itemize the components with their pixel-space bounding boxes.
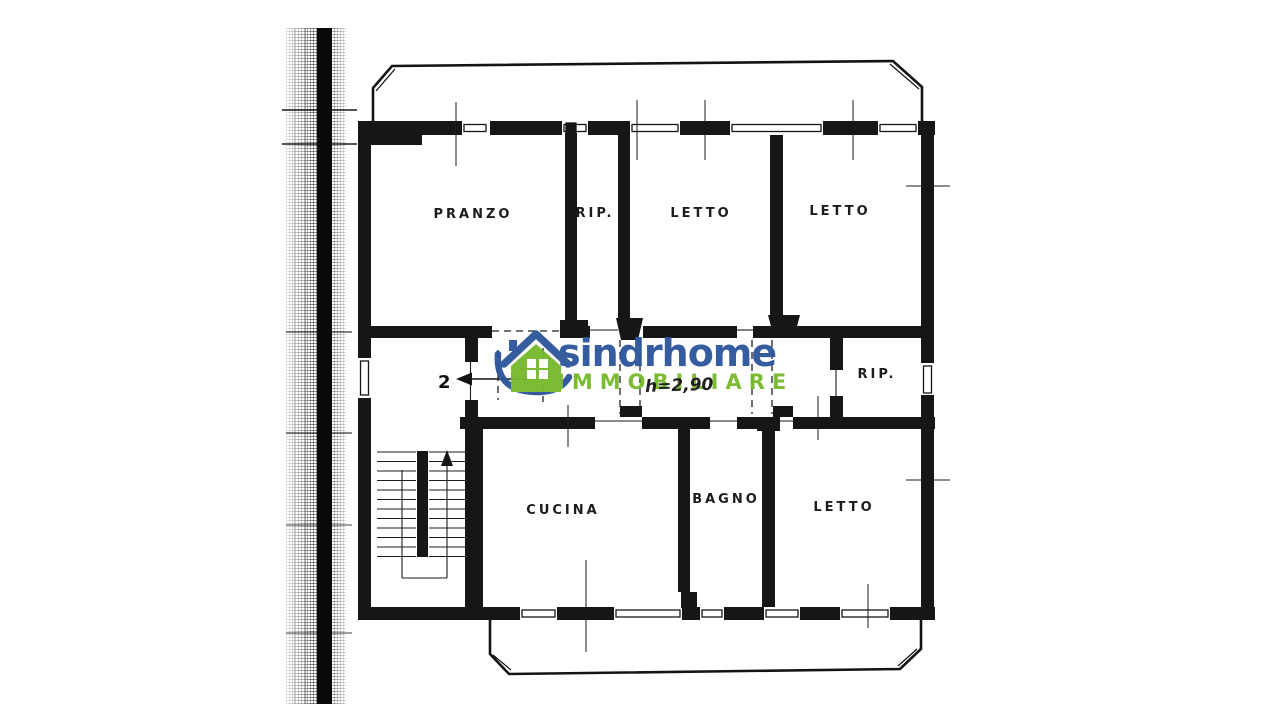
room-label-letto-top-right: LETTO: [809, 204, 870, 219]
ceiling-height-note: h=2,90: [645, 375, 714, 397]
room-label-letto-bottom: LETTO: [813, 500, 874, 515]
balcony-bottom: [490, 620, 921, 674]
watermark-logo: sindrhome IMMOBILIARE h=2,90: [498, 331, 793, 397]
unit-number-label: 2: [438, 372, 451, 393]
room-label-rip-top: RIP.: [576, 206, 615, 221]
scan-artifact-core: [317, 28, 332, 704]
watermark-brand-text: sindrhome: [558, 331, 776, 375]
room-label-pranzo: PRANZO: [434, 207, 513, 222]
room-label-cucina: CUCINA: [526, 503, 599, 518]
floor-plan-drawing: 2 PRANZO RIP. LETTO LETTO RIP. CUCINA BA…: [0, 0, 1280, 720]
room-label-bagno: BAGNO: [692, 492, 760, 507]
entry-arrow-icon: [456, 373, 472, 386]
stairs: [377, 450, 468, 578]
balcony-top: [373, 61, 922, 121]
room-label-letto-top-left: LETTO: [670, 206, 731, 221]
room-label-rip-right: RIP.: [858, 367, 897, 382]
scanned-floorplan-page: 2 PRANZO RIP. LETTO LETTO RIP. CUCINA BA…: [0, 0, 1280, 720]
